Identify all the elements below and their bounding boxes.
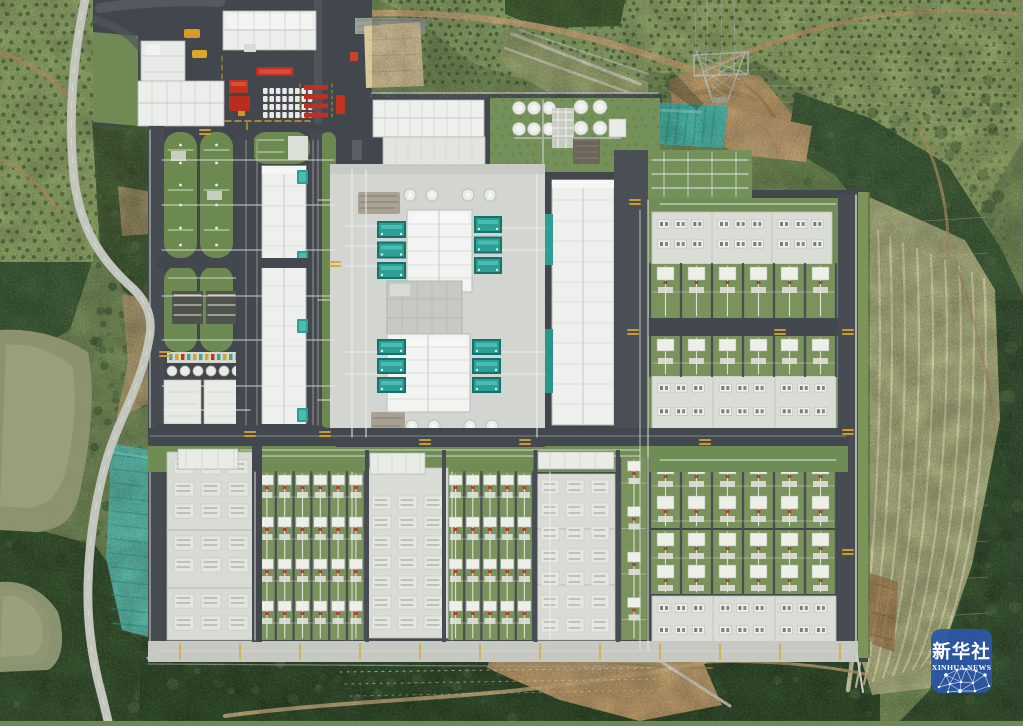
svg-text:XINHUA NEWS: XINHUA NEWS: [932, 663, 991, 672]
svg-text:新华社: 新华社: [932, 641, 991, 662]
